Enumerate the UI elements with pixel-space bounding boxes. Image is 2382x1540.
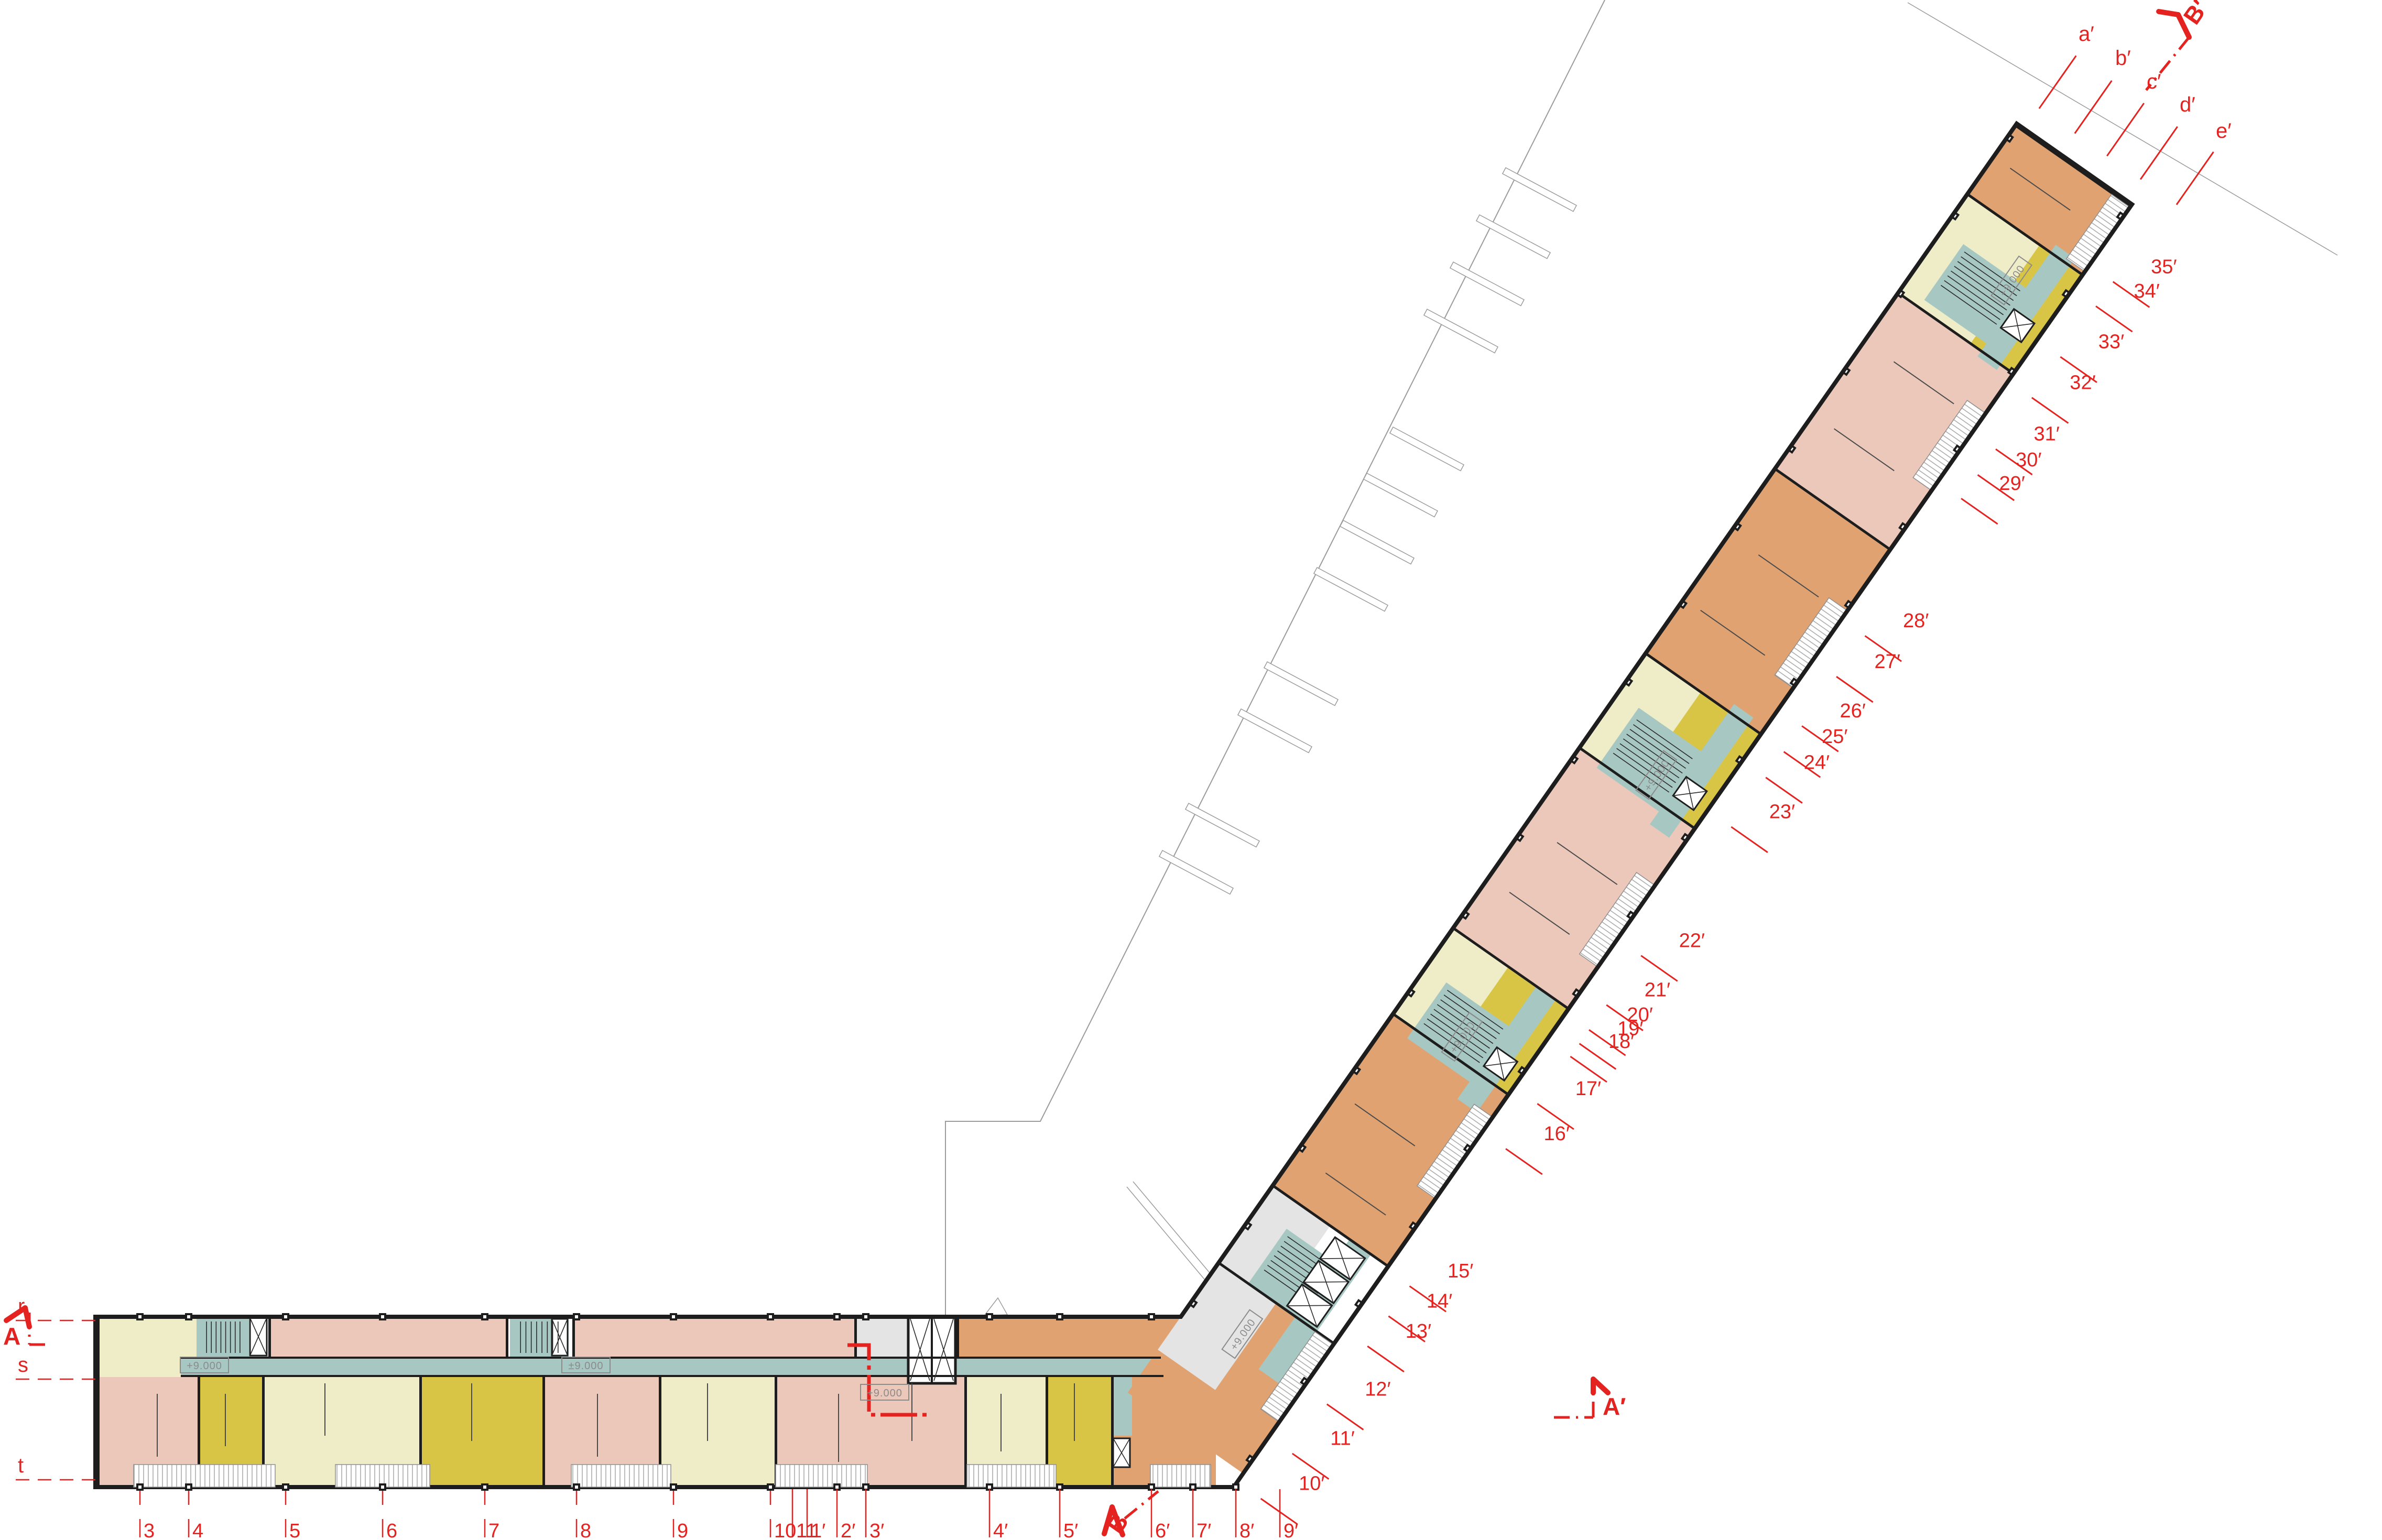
column-core xyxy=(381,1315,384,1318)
parking-stall-row xyxy=(1238,709,1312,753)
level-text: +9.000 xyxy=(187,1360,222,1372)
grid-annotations: 345678910111′2′3′4′5′6′7′8′9′rst10′11′12… xyxy=(3,0,2248,1540)
grid-label-bottom: 9 xyxy=(677,1520,688,1540)
column-core xyxy=(864,1315,867,1318)
unit-salmon xyxy=(572,1317,854,1359)
balcony xyxy=(134,1465,275,1487)
party-wall xyxy=(956,1317,959,1359)
parking-stall-row xyxy=(1424,309,1498,353)
grid-tick xyxy=(2075,81,2112,134)
grid-label-diagonal: 24′ xyxy=(1804,751,1830,773)
column-core xyxy=(1058,1315,1061,1318)
parking-stall-row xyxy=(1450,262,1524,306)
corridor-wall xyxy=(181,1357,1161,1359)
party-wall xyxy=(1111,1377,1114,1487)
level-text: +9.000 xyxy=(867,1388,902,1399)
access-road-edge-1 xyxy=(1127,1187,1212,1288)
column-core xyxy=(988,1315,991,1318)
grid-label-diagonal: 25′ xyxy=(1822,726,1847,748)
grid-label-bottom: 2′ xyxy=(841,1520,855,1540)
grid-label-diagonal: 35′ xyxy=(2151,256,2177,278)
parking-stall-row xyxy=(1476,215,1550,259)
grid-label-diagonal: 12′ xyxy=(1365,1378,1390,1400)
corridor xyxy=(181,1359,1161,1377)
floorplan-canvas: +9.000+9.000+9.000+9.000 345678910111′2′… xyxy=(0,0,2382,1540)
parking-stall-row xyxy=(1314,567,1388,611)
grid-label-top: d′ xyxy=(2180,93,2195,116)
party-wall xyxy=(572,1317,575,1359)
column-core xyxy=(672,1315,675,1318)
diagonal-wing: +9.000+9.000+9.000+9.000 xyxy=(1126,122,2134,1475)
balcony xyxy=(967,1465,1056,1487)
grid-label-bottom: 3′ xyxy=(869,1520,884,1540)
column-core xyxy=(483,1486,486,1489)
building-footprint xyxy=(95,124,2132,1487)
balcony xyxy=(1150,1465,1211,1487)
column-core xyxy=(672,1486,675,1489)
grid-tick xyxy=(2039,56,2076,108)
grid-tick xyxy=(1766,778,1802,803)
column-core xyxy=(1234,1486,1237,1489)
grid-label-bottom: 4 xyxy=(192,1520,203,1540)
grid-label-diagonal: 17′ xyxy=(1575,1078,1601,1100)
grid-tick xyxy=(1836,676,1873,702)
section-arrow xyxy=(2159,12,2178,15)
grid-label-bottom: 7 xyxy=(488,1520,499,1540)
grid-label-diagonal: 30′ xyxy=(2016,449,2041,471)
unit-orange xyxy=(956,1317,1181,1359)
grid-label-left: t xyxy=(18,1454,24,1477)
building-outline xyxy=(95,124,2132,1487)
column-core xyxy=(1150,1486,1153,1489)
unit-pale-yellow xyxy=(659,1377,775,1487)
grid-tick xyxy=(2032,398,2069,423)
column-core xyxy=(769,1486,772,1489)
grid-label-diagonal: 29′ xyxy=(1999,473,2025,495)
grid-label-bottom: 3 xyxy=(144,1520,155,1540)
level-text: ±9.000 xyxy=(568,1360,603,1372)
unit-mustard xyxy=(419,1377,542,1487)
grid-label-top: b′ xyxy=(2115,47,2131,70)
party-wall xyxy=(268,1317,271,1359)
grid-label-diagonal: 23′ xyxy=(1769,801,1795,823)
party-wall xyxy=(854,1317,857,1359)
stair-core xyxy=(197,1317,249,1357)
column-core xyxy=(187,1486,190,1489)
grid-label-bottom: 7′ xyxy=(1197,1520,1211,1540)
grid-tick xyxy=(1261,1499,1298,1524)
grid-label-diagonal: 21′ xyxy=(1645,979,1670,1001)
column-core xyxy=(483,1315,486,1318)
grid-label-diagonal: 10′ xyxy=(1299,1473,1324,1495)
parking-stall-row xyxy=(1264,662,1338,706)
grid-label-top: e′ xyxy=(2216,119,2232,143)
section-line xyxy=(1125,1491,1158,1519)
grid-label-diagonal: 33′ xyxy=(2098,331,2124,353)
grid-label-bottom: 4′ xyxy=(993,1520,1008,1540)
unit-salmon xyxy=(268,1317,506,1359)
grid-label-left: s xyxy=(18,1353,28,1377)
column-core xyxy=(187,1315,190,1318)
grid-tick xyxy=(1367,1346,1404,1372)
grid-tick xyxy=(1506,1149,1542,1174)
grid-tick xyxy=(2177,152,2214,205)
grid-label-diagonal: 28′ xyxy=(1903,610,1929,632)
column-core xyxy=(835,1315,839,1318)
grid-tick xyxy=(1731,827,1768,853)
grid-label-diagonal: 16′ xyxy=(1544,1123,1570,1145)
grid-tick xyxy=(2140,127,2178,180)
building: +9.000+9.000+9.000+9.000 xyxy=(95,122,2134,1487)
parking-stall-row xyxy=(1340,520,1414,564)
grid-tick xyxy=(2107,103,2144,156)
column-core xyxy=(1058,1486,1061,1489)
grid-label-bottom: 1′ xyxy=(811,1520,825,1540)
parking-stall-row xyxy=(1364,473,1438,517)
parking-stall-row xyxy=(1390,427,1464,471)
column-core xyxy=(381,1486,384,1489)
grid-label-bottom: 6 xyxy=(386,1520,397,1540)
party-wall xyxy=(506,1317,508,1359)
grid-label-diagonal: 27′ xyxy=(1874,651,1900,673)
grid-label-bottom: 5′ xyxy=(1063,1520,1078,1540)
party-wall xyxy=(542,1377,545,1487)
grid-label-diagonal: 26′ xyxy=(1840,700,1866,722)
parking-stall-row xyxy=(1503,168,1576,212)
column-core xyxy=(284,1315,287,1318)
balcony xyxy=(776,1465,867,1487)
column-core xyxy=(769,1315,772,1318)
column-core xyxy=(988,1486,991,1489)
column-core xyxy=(864,1486,867,1489)
stair-core xyxy=(1111,1377,1132,1436)
column-core xyxy=(575,1315,578,1318)
column-core xyxy=(835,1486,839,1489)
grid-label-bottom: 8′ xyxy=(1239,1520,1254,1540)
grid-tick xyxy=(1641,956,1678,981)
access-road-edge-2 xyxy=(1133,1182,1218,1283)
column-core xyxy=(138,1315,142,1318)
grid-tick xyxy=(1961,498,1998,524)
balcony xyxy=(571,1465,671,1487)
column-core xyxy=(1191,1486,1194,1489)
parking-stall-row xyxy=(1185,803,1259,847)
grid-tick xyxy=(1327,1404,1364,1430)
grid-label-diagonal: 31′ xyxy=(2033,423,2059,445)
grid-label-diagonal: 15′ xyxy=(1448,1260,1473,1282)
grid-label-diagonal: 32′ xyxy=(2070,372,2095,394)
grid-label-top: a′ xyxy=(2079,23,2094,46)
column-core xyxy=(1150,1315,1153,1318)
section-label: A xyxy=(3,1323,20,1350)
survey-flag xyxy=(984,1298,1007,1316)
grid-label-bottom: 6′ xyxy=(1155,1520,1170,1540)
column-core xyxy=(138,1486,142,1489)
corridor-wall xyxy=(181,1375,1163,1377)
end-wall-west xyxy=(95,1315,100,1489)
grid-tick xyxy=(2096,306,2133,332)
parking-stall-row xyxy=(1159,850,1233,894)
grid-label-diagonal: 11′ xyxy=(1330,1428,1355,1450)
grid-label-diagonal: 22′ xyxy=(1679,930,1705,952)
column-core xyxy=(575,1486,578,1489)
parking-strips xyxy=(1159,168,1576,894)
grid-label-bottom: 5 xyxy=(289,1520,300,1540)
site-boundary-polyline xyxy=(945,0,1605,1317)
section-label: A′ xyxy=(1603,1393,1626,1420)
grid-label-top: c′ xyxy=(2147,70,2161,93)
facade-top xyxy=(95,1315,1181,1319)
column-core xyxy=(284,1486,287,1489)
grid-label-bottom: 8 xyxy=(580,1520,591,1540)
